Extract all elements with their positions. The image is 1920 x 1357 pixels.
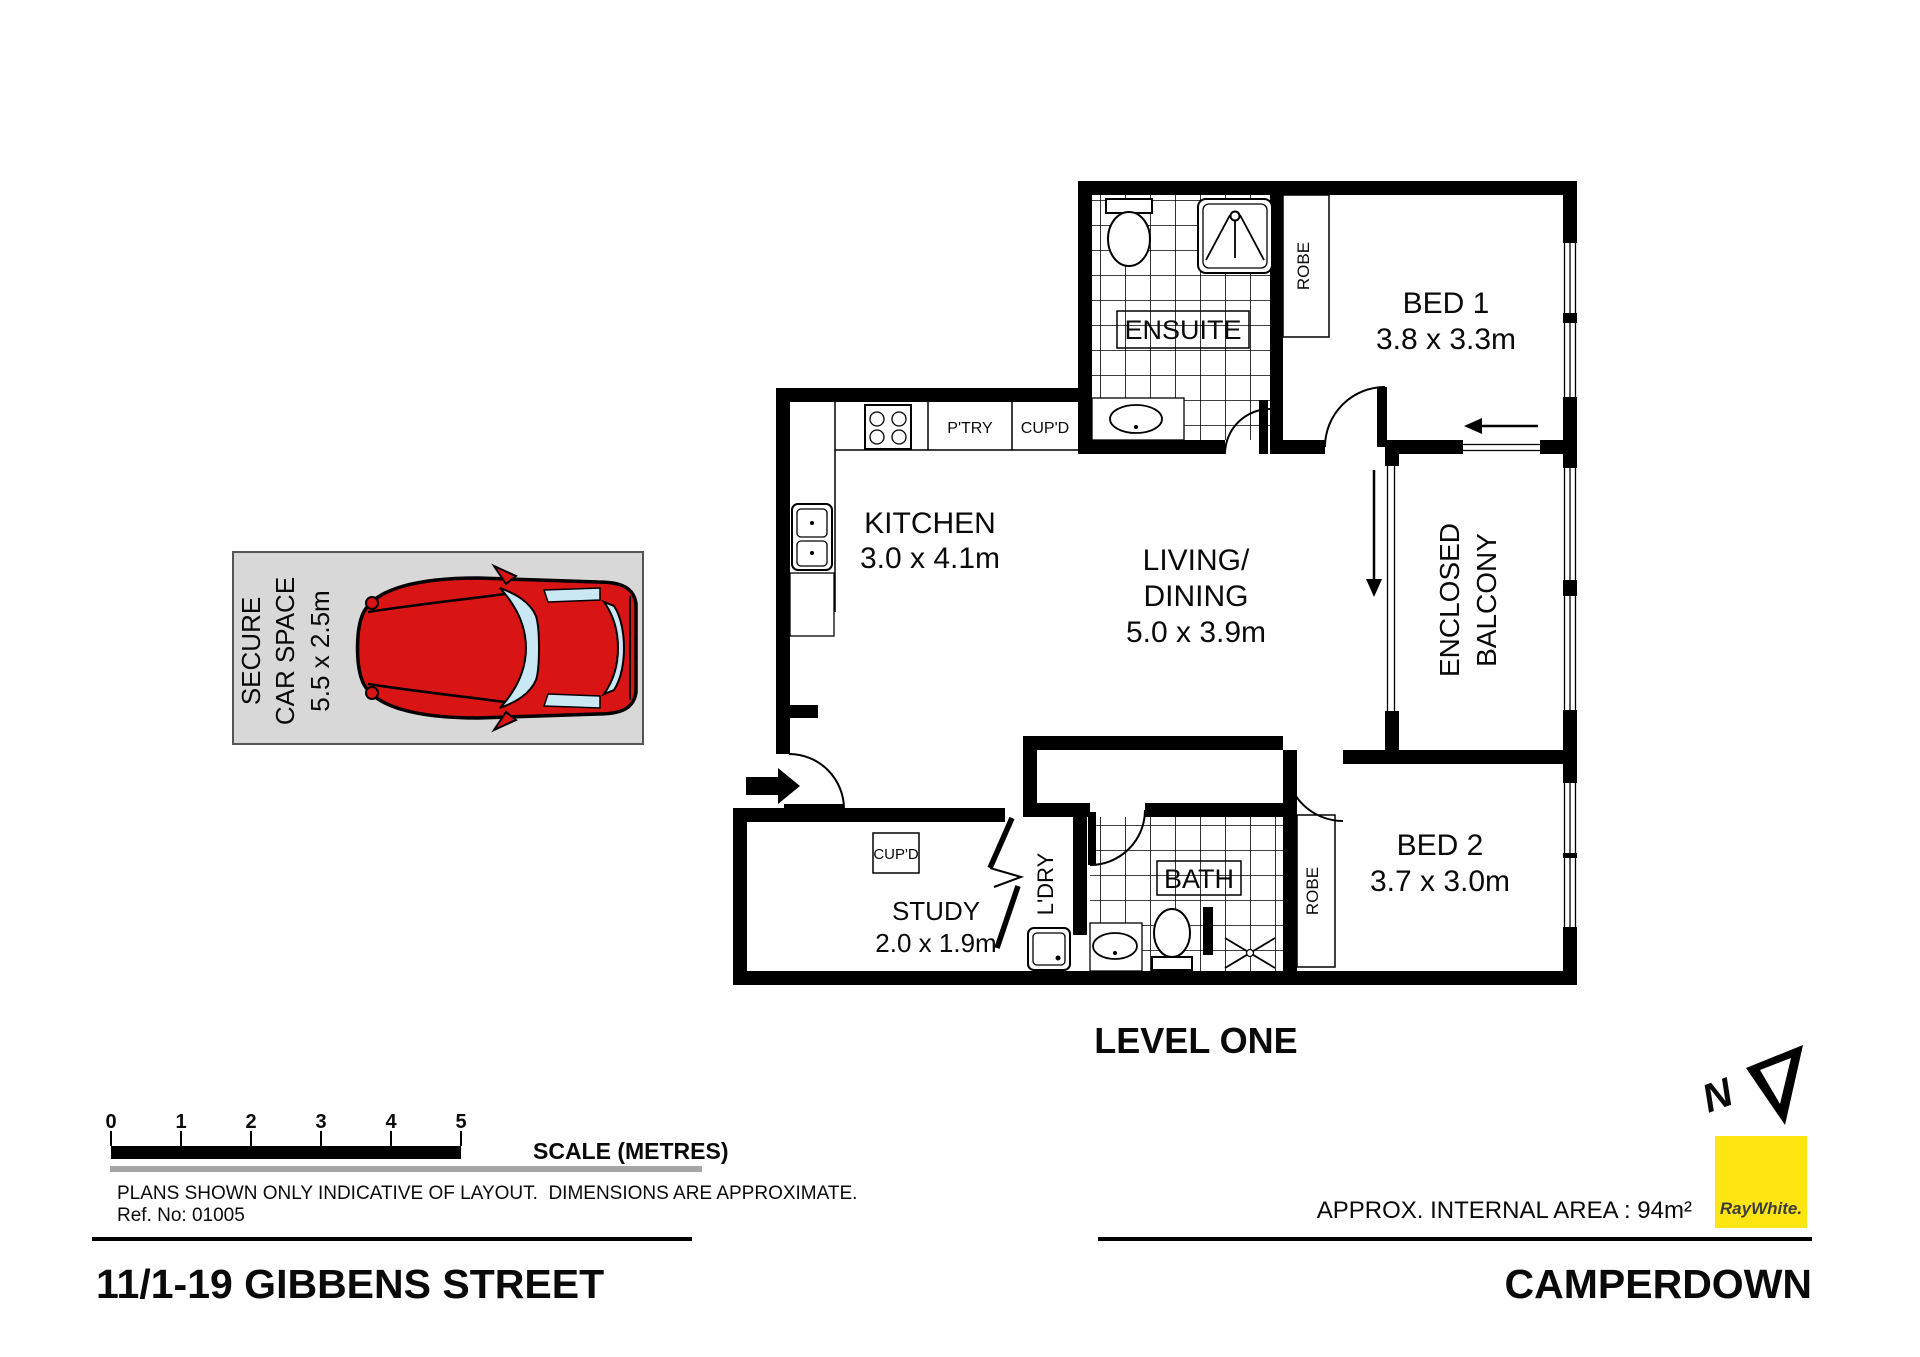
scale-bar: 0 1 2 3 4 5 SCALE (METRES) PLANS SHOWN O… <box>105 1111 857 1226</box>
kitchen-cupboard-label: CUP'D <box>1021 420 1069 437</box>
car-space-dims: 5.5 x 2.5m <box>305 590 335 711</box>
kitchen-label: KITCHEN <box>864 507 996 540</box>
scale-tick-1: 1 <box>175 1111 186 1133</box>
kitchen-dims: 3.0 x 4.1m <box>860 542 1000 575</box>
toilet-icon <box>1106 199 1152 266</box>
footer: 11/1-19 GIBBENS STREET CAMPERDOWN APPROX… <box>92 1045 1812 1307</box>
balcony-slider-track <box>1366 466 1395 711</box>
study-dims: 2.0 x 1.9m <box>875 928 996 958</box>
bed1-dims: 3.8 x 3.3m <box>1376 323 1516 356</box>
floorplan-page: BED 1 3.8 x 3.3m BED 2 3.7 x 3.0m KITCHE… <box>0 0 1920 1357</box>
hall-cupboard-label: CUP'D <box>873 846 919 863</box>
robe1-label: ROBE <box>1294 242 1313 290</box>
car-space: SECURE CAR SPACE 5.5 x 2.5m <box>233 552 643 744</box>
bed2-label: BED 2 <box>1397 829 1484 862</box>
entry-arrow-icon <box>746 768 800 804</box>
living-label-1: LIVING/ <box>1143 544 1250 577</box>
scale-tick-2: 2 <box>245 1111 256 1133</box>
shower-icon <box>1198 199 1272 273</box>
north-letter: N <box>1696 1070 1739 1122</box>
bed1-label: BED 1 <box>1403 287 1490 320</box>
robe2-label: ROBE <box>1303 867 1322 915</box>
balcony-label-2: BALCONY <box>1471 533 1502 667</box>
bed1-door <box>1325 387 1387 447</box>
entry-door <box>746 754 844 813</box>
car-space-label-2: CAR SPACE <box>270 577 300 725</box>
brand-logo: RayWhite. <box>1715 1136 1807 1228</box>
living-dims: 5.0 x 3.9m <box>1126 616 1266 649</box>
scale-label: SCALE (METRES) <box>533 1138 729 1164</box>
gray-divider <box>110 1166 702 1172</box>
footer-rule-right <box>1098 1237 1812 1241</box>
ref-no-text: Ref. No: 01005 <box>117 1205 245 1226</box>
brand-logo-text: RayWhite. <box>1720 1199 1802 1218</box>
ensuite-label: ENSUITE <box>1124 315 1241 345</box>
living-label-2: DINING <box>1144 580 1249 613</box>
suburb-title: CAMPERDOWN <box>1505 1261 1812 1307</box>
ensuite-vanity-icon <box>1092 398 1184 440</box>
fridge-space <box>790 573 834 636</box>
study-label: STUDY <box>892 896 980 926</box>
cooktop-icon <box>865 405 911 449</box>
car-icon <box>358 566 637 730</box>
floorplan-drawing: BED 1 3.8 x 3.3m BED 2 3.7 x 3.0m KITCHE… <box>0 0 1920 1357</box>
bed2-dims: 3.7 x 3.0m <box>1370 865 1510 898</box>
bath-vanity-icon <box>1090 923 1142 971</box>
scale-tick-5: 5 <box>455 1111 466 1133</box>
laundry-tub-icon <box>1028 928 1070 970</box>
pantry-label: P'TRY <box>947 420 993 437</box>
bath-label-box: BATH <box>1157 861 1241 895</box>
laundry-label: L'DRY <box>1033 852 1058 915</box>
address-title: 11/1-19 GIBBENS STREET <box>96 1261 604 1307</box>
kitchen-sink-icon <box>792 504 832 570</box>
bath-label: BATH <box>1164 864 1234 894</box>
scale-ticks <box>111 1131 461 1146</box>
scale-tick-3: 3 <box>315 1111 326 1133</box>
balcony-label-1: ENCLOSED <box>1434 523 1465 677</box>
car-space-label-1: SECURE <box>236 597 266 705</box>
scale-bar-rule <box>111 1146 461 1159</box>
north-arrow-icon: N <box>1696 1045 1803 1125</box>
ensuite-label-box: ENSUITE <box>1117 311 1249 348</box>
level-label: LEVEL ONE <box>1094 1020 1297 1061</box>
bed1-slider-track <box>1463 418 1540 451</box>
disclaimer-text: PLANS SHOWN ONLY INDICATIVE OF LAYOUT. D… <box>117 1183 857 1204</box>
bath-toilet-icon <box>1152 909 1192 970</box>
internal-area-text: APPROX. INTERNAL AREA : 94m² <box>1317 1197 1692 1224</box>
scale-tick-4: 4 <box>385 1111 397 1133</box>
scale-tick-0: 0 <box>105 1111 116 1133</box>
footer-rule-left <box>92 1237 692 1241</box>
